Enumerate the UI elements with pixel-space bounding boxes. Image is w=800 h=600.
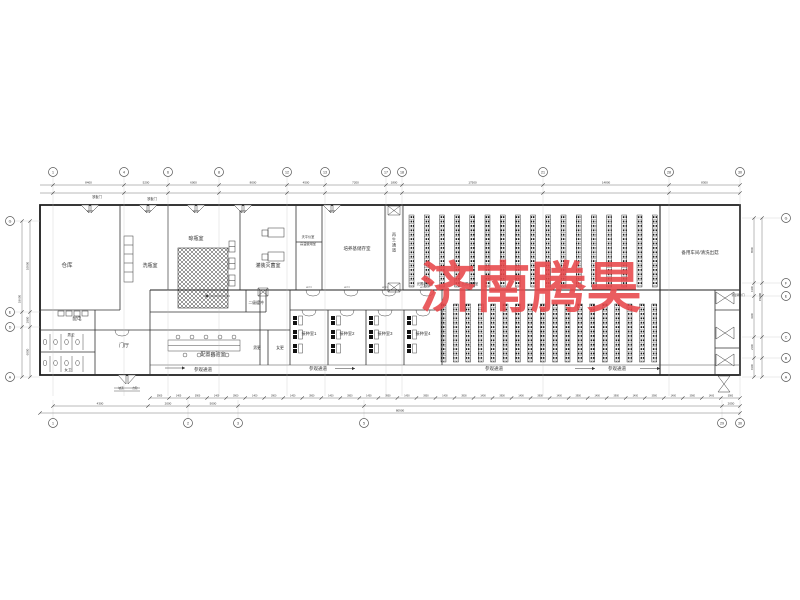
grid-bubble-label: 8 — [218, 170, 220, 174]
clean-bench — [293, 330, 297, 334]
clean-bench — [293, 316, 297, 320]
drying-rack-hatch — [178, 248, 228, 308]
grid-bubble-label: G — [785, 216, 788, 220]
label-steel_door: 铁板门 — [147, 196, 157, 201]
dim-value: 3900 — [347, 395, 353, 398]
label-corridor: 参观通道 — [309, 365, 327, 372]
dim-value: 3900 — [652, 395, 658, 398]
label-wash: 洗瓶室 — [142, 262, 157, 269]
clean-bench — [331, 335, 335, 339]
dim-value: 17500 — [468, 180, 477, 184]
dim-value: 6500 — [750, 247, 754, 253]
watermark: 济南腾昊 — [420, 257, 642, 319]
grid-bubble-label: 3 — [237, 421, 239, 425]
door-tag: W727 — [329, 210, 336, 213]
dim-value: 6000 — [190, 180, 197, 184]
dim-value: 1400 — [176, 395, 182, 398]
dim-value: 1400 — [556, 395, 562, 398]
clean-bench-outline — [299, 316, 303, 325]
dim-value: 5000 — [210, 402, 217, 406]
dim-value: 7200 — [352, 180, 359, 184]
label-wc_m: 男卫 — [67, 332, 75, 337]
label-hitemp: 高温使用室 — [300, 241, 316, 246]
clean-bench — [407, 349, 411, 353]
door-tag: W727 — [306, 287, 312, 289]
dim-value: 1400 — [442, 395, 448, 398]
clean-bench — [369, 321, 373, 325]
dim-value: 4100 — [750, 313, 754, 319]
dim-value: 1400 — [518, 395, 524, 398]
dim-value: 3900 — [575, 395, 581, 398]
clean-bench-outline — [413, 344, 417, 353]
dim-value: 1400 — [252, 395, 258, 398]
arc-door-symbol — [115, 330, 129, 336]
dim-value: 2100 — [750, 344, 754, 350]
grid-bubble-label: 21 — [541, 170, 545, 174]
clean-bench — [369, 335, 373, 339]
buffer-door-symbol — [388, 206, 400, 215]
label-inoc2: 接种室2 — [340, 330, 356, 337]
grid-bubble-label: D — [9, 325, 12, 329]
label-power: 配电 — [73, 315, 82, 322]
label-corridor: 参观通道 — [608, 365, 626, 372]
dim-value: 1400 — [595, 395, 601, 398]
label-wc_f: 女卫 — [64, 367, 72, 372]
corridor-door-symbol — [716, 327, 734, 339]
label-steps: 台阶 — [132, 386, 138, 390]
autoclaves — [262, 228, 284, 261]
dim-value: 3900 — [537, 395, 543, 398]
label-corridor: 参观通道 — [485, 365, 503, 372]
dim-value: 1800 — [26, 316, 30, 323]
clean-bench-outline — [413, 316, 417, 325]
arc-door-symbol — [344, 290, 358, 296]
label-inoc3: 接种室3 — [378, 330, 394, 337]
label-lab: 配置实验室 — [200, 351, 225, 358]
generated-annotations: 14681213171821283012352930GEDAGFECBA8400… — [6, 168, 791, 428]
dim-value: 1800 — [391, 180, 398, 184]
grid-bubble-label: 5 — [363, 421, 365, 425]
cad-floor-plan-page: 14681213171821283012352930GEDAGFECBA8400… — [0, 0, 800, 600]
clean-bench — [407, 330, 411, 334]
dim-value: 1400 — [214, 395, 220, 398]
label-chg_m: 男更 — [253, 345, 261, 350]
grid-bubble-label: 30 — [738, 421, 742, 425]
grid-bubble-label: 30 — [738, 170, 742, 174]
label-corridor: 参观通道 — [194, 366, 212, 373]
arc-door-symbol — [382, 290, 396, 296]
clean-bench — [369, 344, 373, 348]
clean-bench — [407, 344, 411, 348]
grid-bubble-label: 6 — [167, 170, 169, 174]
buffer-door-symbol — [388, 283, 400, 292]
label-chg_f: 女更 — [276, 345, 284, 350]
grid-bubble-label: 1 — [52, 170, 54, 174]
dim-value: 3900 — [233, 395, 239, 398]
clean-bench — [293, 344, 297, 348]
dim-total: 18600 — [18, 294, 22, 303]
clean-bench — [293, 335, 297, 339]
arrowhead — [592, 367, 595, 370]
clean-bench — [369, 349, 373, 353]
label-medium: 培养基储存室 — [344, 245, 371, 252]
dim-value: 1400 — [290, 395, 296, 398]
dim-value: 3900 — [614, 395, 620, 398]
dim-value: 1400 — [366, 395, 372, 398]
clean-bench — [331, 321, 335, 325]
door-tag: W727 — [382, 287, 388, 289]
toilet-stalls — [43, 334, 83, 372]
door-tag: W727 — [87, 210, 94, 213]
floor-plan-drawing: 14681213171821283012352930GEDAGFECBA8400… — [0, 0, 800, 600]
bottle-machines — [229, 241, 235, 286]
dim-value: 1400 — [404, 395, 410, 398]
grid-bubble-label: 29 — [720, 421, 724, 425]
clean-bench — [331, 330, 335, 334]
clean-bench — [331, 344, 335, 348]
grid-bubble-label: C — [785, 335, 788, 339]
label-warehouse: 仓库 — [61, 261, 73, 269]
dim-value: 1900 — [750, 364, 754, 370]
grid-bubble-label: 4 — [123, 170, 125, 174]
clean-bench-outline — [375, 316, 379, 325]
label-temp_door: 常温转换门 — [732, 293, 745, 297]
dim-value: 5200 — [143, 180, 150, 184]
arrowhead — [352, 367, 355, 370]
label-regen: 再生通道 — [392, 232, 396, 253]
arrowhead — [182, 366, 185, 369]
dim-value: 8400 — [85, 180, 92, 184]
label-spare: 备用车间/清洗出菇 — [681, 249, 719, 256]
grid-bubble-label: 13 — [323, 170, 327, 174]
dim-value: 3900 — [461, 395, 467, 398]
grid-bubble-label: 2 — [187, 421, 189, 425]
dim-value: 3900 — [385, 395, 391, 398]
dim-value: 1400 — [671, 395, 677, 398]
dim-value: 1300 — [750, 286, 754, 292]
dim-value: 8300 — [701, 180, 708, 184]
culture-rack-top — [409, 215, 414, 287]
door-tag: W727 — [193, 210, 200, 213]
dim-value: 3900 — [423, 395, 429, 398]
dim-value: 3900 — [271, 395, 277, 398]
arc-door-symbol — [306, 290, 320, 296]
dim-value: 6000 — [26, 348, 30, 355]
dim-value: 2000 — [165, 402, 172, 406]
arc-door-symbol — [340, 310, 354, 316]
dim-value: 4500 — [303, 180, 310, 184]
clean-bench — [407, 316, 411, 320]
dim-value: 3900 — [499, 395, 505, 398]
door-tag: W727 — [344, 287, 350, 289]
culture-rack-top — [652, 215, 657, 287]
clean-bench — [369, 330, 373, 334]
clean-bench — [331, 349, 335, 353]
grid-bubble-label: 12 — [285, 170, 289, 174]
clean-bench-outline — [337, 344, 341, 353]
grid-bubble-label: 1 — [52, 421, 54, 425]
grid-bubble-label: 18 — [400, 170, 404, 174]
dim-value: 1400 — [480, 395, 486, 398]
dim-value: 2050 — [728, 402, 735, 406]
dim-total: 15900 — [758, 292, 762, 301]
label-inoc4: 接种室4 — [416, 330, 432, 337]
door-tag: W727 — [240, 210, 247, 213]
dim-value: 3900 — [690, 395, 696, 398]
buffer-door-symbol — [258, 288, 268, 296]
clean-bench — [293, 349, 297, 353]
label-ramp: 坡道 — [118, 386, 124, 390]
dim-total: 80900 — [396, 409, 405, 413]
arc-door-symbol — [378, 310, 392, 316]
grid-bubble-label: 17 — [384, 170, 388, 174]
label-steel_door: 铁板门 — [92, 194, 102, 199]
door-tag: W727 — [145, 210, 152, 213]
dim-value: 4300 — [97, 402, 104, 406]
dim-value: 3900 — [728, 395, 734, 398]
label-dry: 晾瓶室 — [188, 235, 203, 242]
label-balance: 天平仪室 — [302, 234, 315, 239]
dim-value: 10800 — [26, 261, 30, 270]
clean-bench — [407, 335, 411, 339]
clean-bench — [407, 321, 411, 325]
label-fill: 灌装灭菌室 — [255, 262, 280, 269]
dim-value: 1400 — [709, 395, 715, 398]
label-buffer2: 二级缓冲 — [248, 300, 263, 305]
dim-value: 3900 — [157, 395, 163, 398]
clean-bench-outline — [299, 344, 303, 353]
dim-value: 14800 — [602, 180, 611, 184]
dim-value: 3900 — [309, 395, 315, 398]
clean-bench-outline — [375, 344, 379, 353]
entrance-door-symbol — [118, 375, 730, 392]
clean-bench — [293, 321, 297, 325]
clean-bench — [369, 316, 373, 320]
clean-bench-outline — [337, 316, 341, 325]
dim-value: 1400 — [633, 395, 639, 398]
dim-value: 3900 — [195, 395, 201, 398]
clean-bench — [331, 316, 335, 320]
culture-rack-bottom — [652, 304, 657, 362]
label-hall: 门厅 — [119, 342, 129, 349]
label-inoc1: 接种室1 — [302, 330, 318, 337]
corridor-door-symbol — [716, 354, 734, 366]
wash-rack — [124, 236, 133, 282]
grid-bubble-label: 28 — [667, 170, 671, 174]
arc-door-symbol — [302, 310, 316, 316]
dim-value: 1400 — [328, 395, 334, 398]
grid-bubble-label: G — [9, 219, 12, 223]
dim-value: 8000 — [250, 180, 257, 184]
